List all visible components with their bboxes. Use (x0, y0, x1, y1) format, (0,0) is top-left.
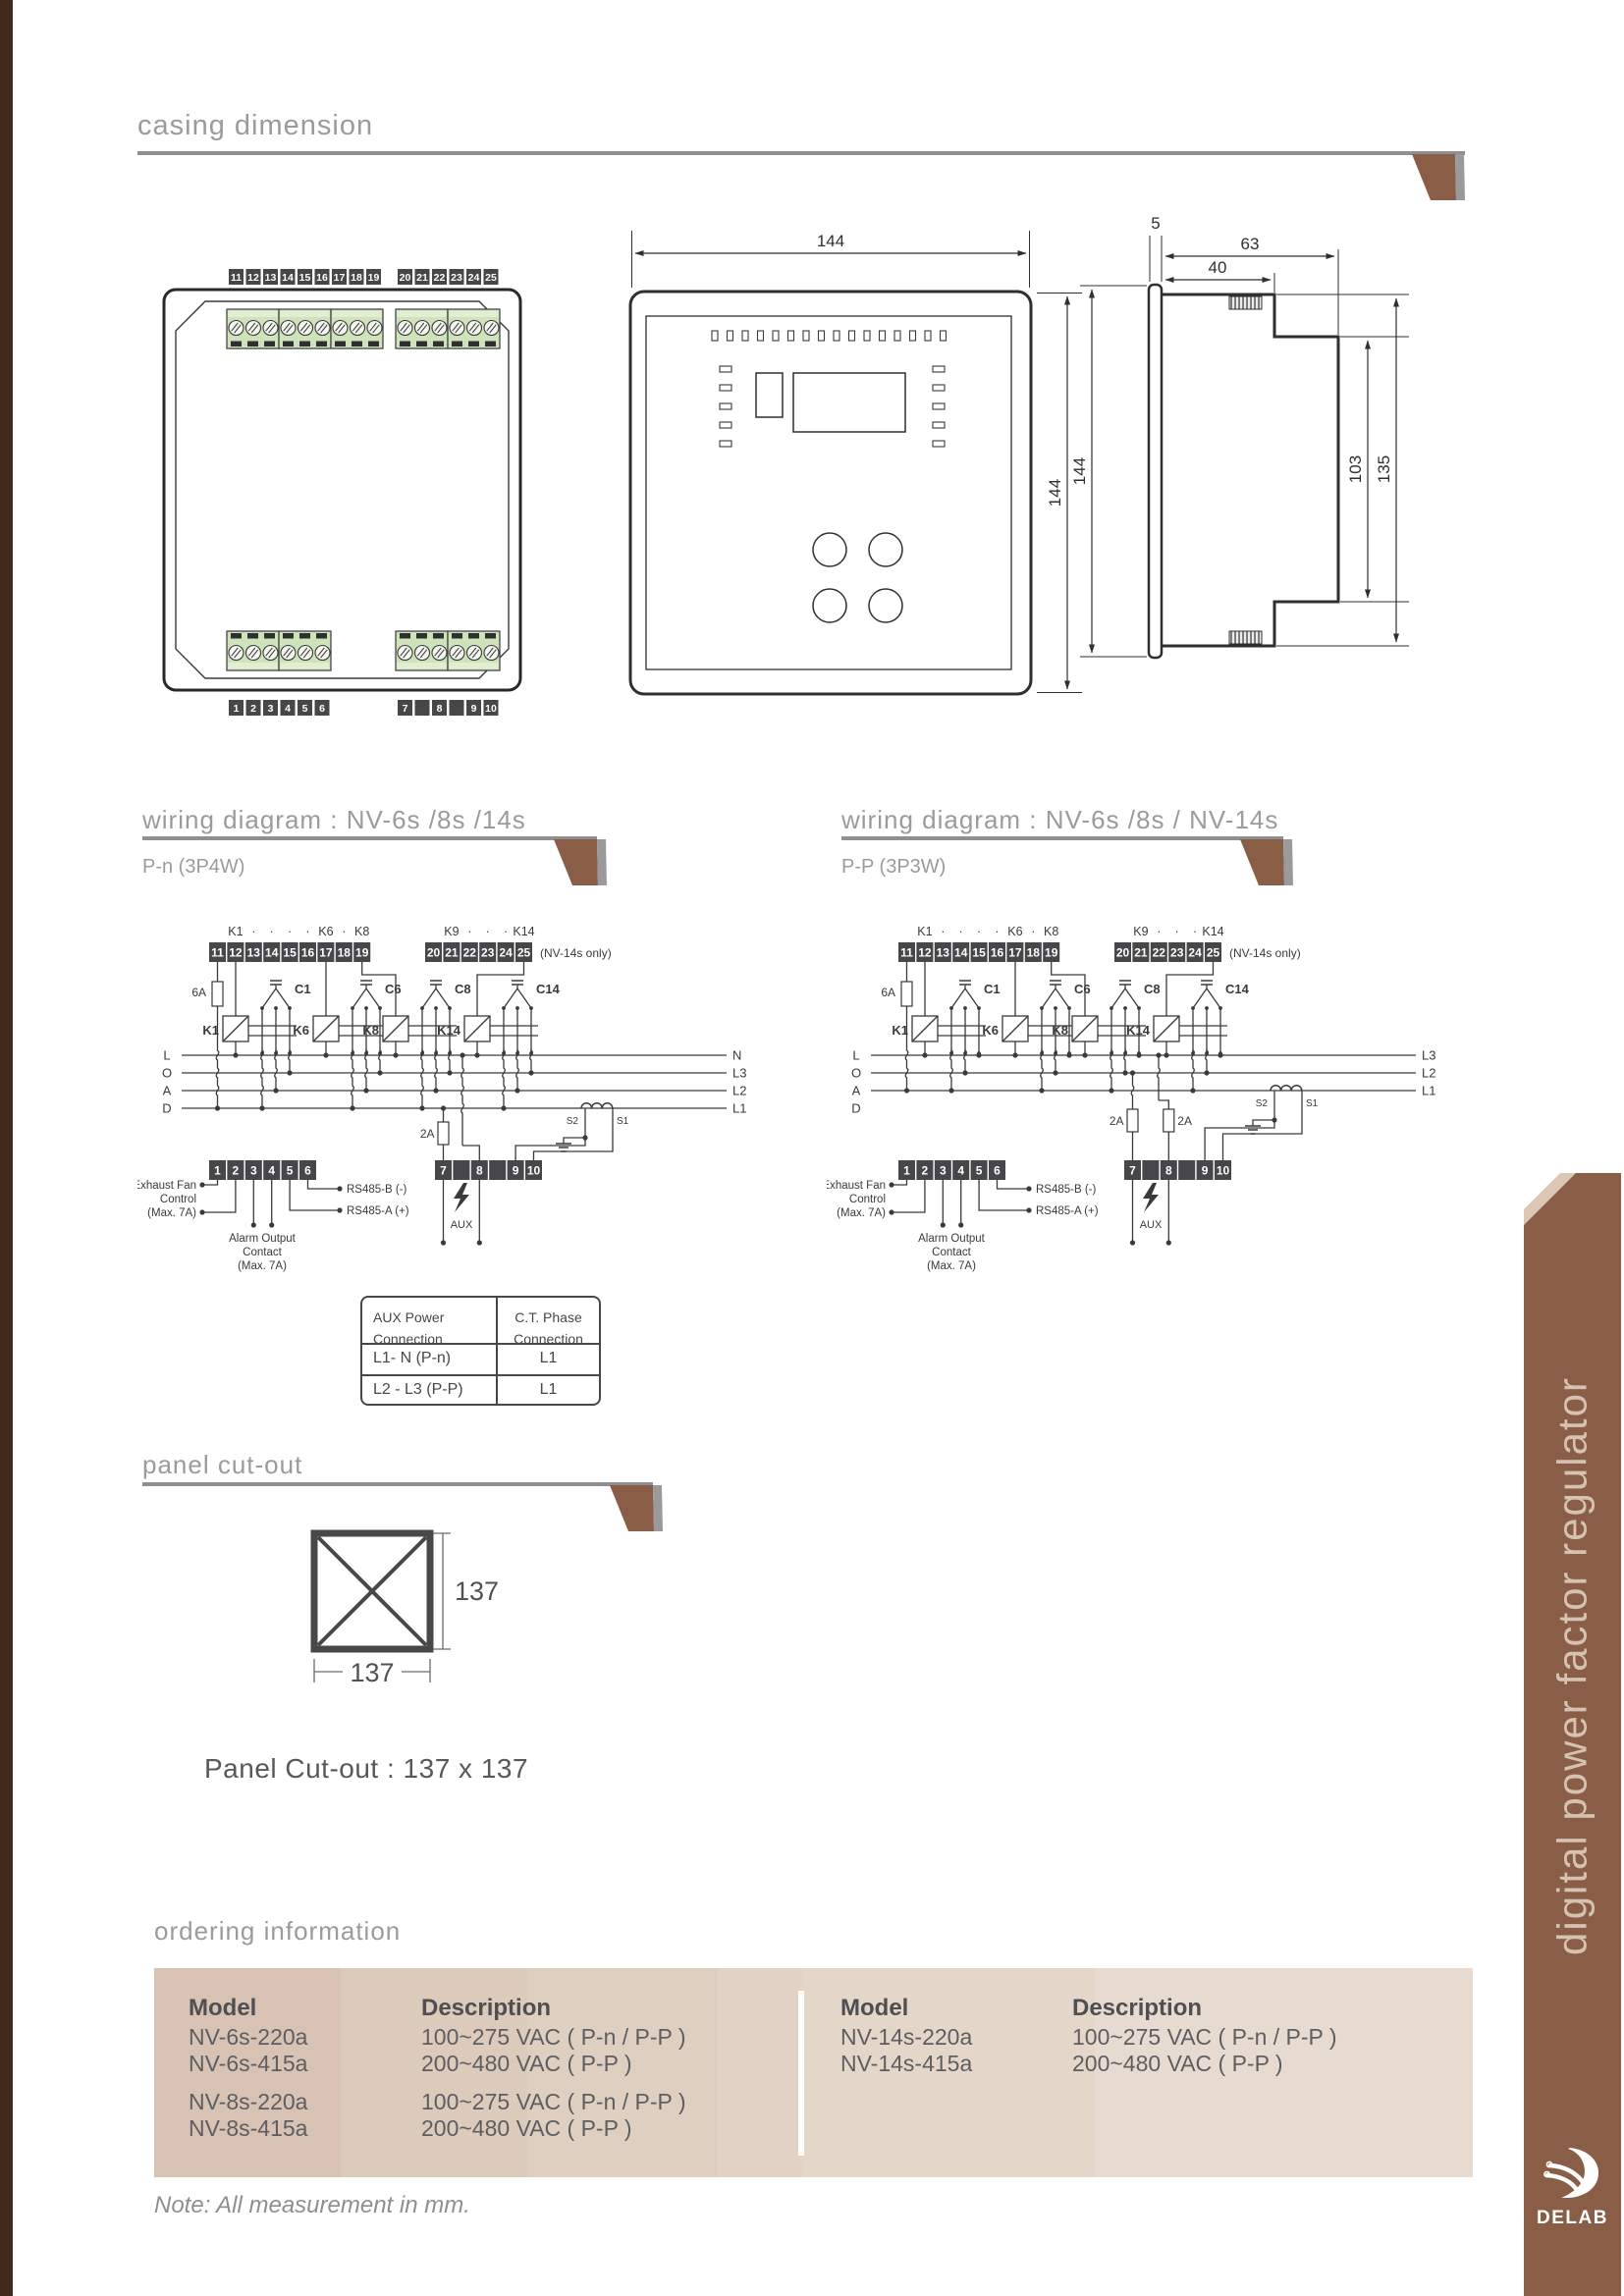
junction-dot (377, 1070, 382, 1075)
section-title-casing: casing dimension (137, 110, 373, 142)
wire-tab (231, 633, 242, 639)
ordering-table-divider (798, 1991, 804, 2156)
fuse (1127, 1109, 1138, 1132)
conn-header-1-line2: Connection (373, 1325, 496, 1347)
wire (436, 988, 450, 1008)
capacitor-label: C14 (1225, 982, 1250, 996)
lightning-icon (454, 1183, 469, 1212)
k-label: K9 (1133, 925, 1148, 938)
terminal-number: 11 (900, 945, 913, 959)
terminal-blocks-top (227, 309, 500, 348)
conn-header-1-line1: AUX Power (373, 1304, 496, 1325)
screw (298, 321, 313, 336)
junction-dot (501, 1105, 506, 1110)
junction-dot (474, 1052, 479, 1057)
front-display (793, 373, 905, 432)
junction-dot (337, 1186, 342, 1191)
terminal-number: 24 (468, 272, 480, 284)
load-letter: A (852, 1084, 861, 1098)
terminal-number: 23 (451, 272, 462, 284)
junction-dot (350, 1105, 354, 1110)
wiring-diagram-pp: L3L2L1LOAD111213141516171819202122232425… (827, 898, 1475, 1276)
panel-cutout-drawing: 137 137 (278, 1520, 671, 1721)
wire-tab (400, 342, 410, 347)
line-label: L1 (1422, 1084, 1435, 1098)
ordering-left-desc-header: Description (421, 1995, 551, 2022)
k-label: K14 (513, 925, 534, 938)
wire-tab (264, 633, 275, 639)
wire (965, 988, 979, 1008)
junction-dot (958, 1222, 963, 1227)
screw (281, 321, 296, 336)
wire (1056, 988, 1069, 1008)
junction-dot (948, 1088, 953, 1093)
rs485-b-label: RS485-B (-) (1036, 1184, 1097, 1196)
fuse (1164, 1109, 1174, 1132)
capacitor-label: C8 (1144, 982, 1161, 996)
terminal-number: 12 (918, 945, 932, 959)
led (933, 366, 945, 372)
front-small-window (756, 373, 783, 417)
terminal-number: 23 (1170, 945, 1184, 959)
junction-dot (514, 1088, 519, 1093)
terminal-number: 9 (1202, 1163, 1209, 1177)
panel-clamp-top (1229, 296, 1262, 309)
load-letter: D (162, 1101, 171, 1116)
wire-tab (452, 633, 462, 639)
capacitor-label: C1 (295, 982, 311, 996)
terminal-number: 7 (1129, 1163, 1136, 1177)
terminal-numbers-1-6: 123456 (229, 700, 330, 716)
rs485-b-label: RS485-B (-) (347, 1184, 407, 1196)
conn-row-2: L2 - L3 (P-P)L1 (362, 1376, 599, 1406)
rule-wiring-left (142, 836, 597, 840)
screw (415, 321, 430, 336)
led-row (712, 331, 947, 341)
junction-dot (1130, 1070, 1135, 1075)
terminal-number: 12 (229, 945, 243, 959)
wiring-left-subtitle: P-n (3P4W) (142, 856, 244, 879)
wire-tab (452, 342, 462, 347)
module-band (333, 311, 382, 318)
rule-wiring-right (841, 836, 1283, 840)
terminal-number: 3 (940, 1163, 947, 1177)
terminal-number: 21 (416, 272, 428, 284)
wire-tab (283, 633, 294, 639)
load-letter: O (851, 1066, 861, 1081)
led (910, 331, 916, 341)
terminal-number: 24 (1188, 945, 1202, 959)
terminal-number: 8 (476, 1163, 483, 1177)
module-band (450, 311, 499, 318)
terminal-number: 18 (351, 272, 362, 284)
junction-dot (1082, 1052, 1087, 1057)
terminal-number: 7 (440, 1163, 447, 1177)
wire-tab (299, 633, 310, 639)
wire-tab (485, 342, 496, 347)
dim-body-depth: 40 (1209, 258, 1227, 277)
panel-dim-width: 137 (350, 1658, 394, 1687)
k-label: K8 (354, 925, 369, 938)
wire (516, 1050, 519, 1091)
terminal-number: 3 (268, 703, 274, 715)
junction-dot (1122, 1070, 1127, 1075)
button-2 (869, 533, 902, 566)
wire (276, 988, 290, 1008)
wiring-right-subtitle: P-P (3P3W) (841, 856, 946, 879)
ordering-left-desc-g1: 100~275 VAC ( P-n / P-P ) 200~480 VAC ( … (421, 2024, 686, 2077)
panel-cutout-caption: Panel Cut-out : 137 x 137 (204, 1753, 528, 1785)
junction-dot (922, 1052, 927, 1057)
screw (263, 321, 278, 336)
terminal-number: 21 (1134, 945, 1148, 959)
module-band (229, 663, 278, 669)
terminal-number: 13 (247, 945, 261, 959)
wire (421, 1050, 424, 1108)
wire (1205, 1120, 1274, 1160)
ordering-left-models-g2: NV-8s-220a NV-8s-415a (189, 2089, 307, 2142)
module-band (281, 311, 330, 318)
terminal-blocks-bottom (227, 631, 500, 670)
terminal-number: 15 (299, 272, 311, 284)
led (941, 331, 947, 341)
casing-dimension-drawing: 111213141516171819 202122232425 123456 7… (137, 162, 1473, 775)
wire-tab (335, 342, 346, 347)
alarm-label: (Max. 7A) (238, 1260, 287, 1272)
wire (515, 1138, 585, 1160)
junction-dot (337, 1207, 342, 1212)
screw (246, 321, 261, 336)
button-1 (813, 533, 846, 566)
terminal-number: 10 (527, 1163, 541, 1177)
terminal-number: 10 (485, 703, 497, 715)
ordering-right-model-header: Model (840, 1995, 908, 2022)
lightning-icon (1143, 1183, 1159, 1212)
load-letter: D (851, 1101, 860, 1116)
nv14-note: (NV-14s only) (540, 946, 612, 960)
flag-decoration-wiring-right (1240, 839, 1299, 888)
screw (229, 321, 244, 336)
dim-bezel: 5 (1151, 214, 1160, 233)
junction-dot (1123, 1006, 1127, 1010)
junction-dot (364, 1006, 368, 1010)
junction-dot (251, 1222, 256, 1227)
wire-tab (316, 342, 327, 347)
sidebar-vertical-title: digital power factor regulator (1524, 1217, 1621, 2114)
ct-s1: S1 (1306, 1098, 1319, 1109)
led (720, 385, 731, 391)
wire (461, 1055, 464, 1146)
terminal-number: 18 (1027, 945, 1041, 959)
terminal-box (453, 1160, 469, 1180)
wire (1193, 988, 1207, 1008)
junction-dot (963, 1006, 967, 1010)
brand-logo-block: DELAB (1524, 2146, 1621, 2229)
fuse-label: 6A (191, 986, 206, 999)
section-title-ordering: ordering information (154, 1916, 401, 1947)
alarm-label: Contact (243, 1247, 282, 1258)
terminal-number: 15 (972, 945, 986, 959)
wire (1111, 988, 1125, 1008)
terminal-number: 21 (445, 945, 459, 959)
fuse-label: 2A (1110, 1114, 1124, 1128)
wire (951, 988, 965, 1008)
led (933, 385, 945, 391)
junction-dot (433, 1088, 438, 1093)
terminal-number: 20 (400, 272, 411, 284)
terminal-number: 2 (250, 703, 256, 715)
fuse-label: 2A (420, 1127, 435, 1141)
ordering-left-models-g1: NV-6s-220a NV-6s-415a (189, 2024, 307, 2077)
k-label: K14 (1202, 925, 1223, 938)
junction-dot (273, 1088, 278, 1093)
terminal-box (450, 700, 464, 716)
led (728, 331, 733, 341)
module-band (281, 663, 330, 669)
aux-ct-connection-table: AUX PowerConnection C.T. PhaseConnection… (360, 1296, 601, 1406)
exhaust-label: (Max. 7A) (147, 1207, 196, 1219)
led (742, 331, 748, 341)
junction-dot (528, 1070, 533, 1075)
junction-dot (1039, 1088, 1044, 1093)
junction-dot (1164, 1052, 1168, 1057)
led (933, 422, 945, 428)
junction-dot (1205, 1006, 1209, 1010)
load-letter: L (163, 1048, 170, 1063)
terminal-number: 14 (265, 945, 279, 959)
screw (415, 646, 430, 661)
terminal-number: 7 (403, 703, 408, 715)
terminal-number: 19 (368, 272, 380, 284)
k-label: K1 (917, 925, 932, 938)
junction-dot (233, 1052, 238, 1057)
terminal-numbers-20-25: 202122232425 (398, 269, 499, 285)
terminal-number: 24 (499, 945, 513, 959)
load-letter: A (163, 1084, 172, 1098)
wire-tab (416, 633, 427, 639)
terminal-box (489, 1160, 506, 1180)
terminal-number: 8 (1165, 1163, 1172, 1177)
ordering-right-desc-header: Description (1072, 1995, 1202, 2022)
measurement-note: Note: All measurement in mm. (154, 2192, 470, 2219)
terminal-number: 2 (233, 1163, 240, 1177)
contactor-label: K1 (892, 1023, 908, 1038)
wire-tab (468, 342, 479, 347)
terminal-number: 23 (481, 945, 495, 959)
junction-dot (1156, 1052, 1161, 1057)
terminal-number: 25 (1207, 945, 1220, 959)
led (720, 441, 731, 447)
wire-tab (468, 633, 479, 639)
junction-dot (904, 1088, 909, 1093)
wire (979, 1180, 1029, 1210)
terminal-number: 6 (994, 1163, 1001, 1177)
screw (281, 646, 296, 661)
k-label: K6 (1007, 925, 1022, 938)
screw (229, 646, 244, 661)
junction-dot (259, 1105, 264, 1110)
button-3 (813, 589, 846, 622)
contactor-label: K1 (202, 1023, 219, 1038)
junction-dot (215, 1105, 220, 1110)
capacitor-label: C1 (984, 982, 1001, 996)
screw (484, 321, 499, 336)
junction-dot (199, 1209, 204, 1214)
led (720, 422, 731, 428)
wire (290, 1180, 340, 1210)
led (849, 331, 855, 341)
contactor-label: K14 (437, 1023, 461, 1038)
panel-dim-height: 137 (455, 1576, 499, 1606)
junction-dot (460, 1052, 464, 1057)
terminal-number: 10 (1217, 1163, 1230, 1177)
alarm-label: Contact (932, 1247, 971, 1258)
junction-dot (1053, 1070, 1057, 1075)
wire-tab (368, 342, 379, 347)
terminal-number: 11 (231, 272, 242, 284)
screw (315, 646, 330, 661)
delab-logo-icon (1543, 2146, 1603, 2201)
terminal-number: 1 (214, 1163, 221, 1177)
k-label: K9 (444, 925, 459, 938)
screw (450, 646, 464, 661)
capacitor-label: C6 (1074, 982, 1091, 996)
terminal-number: 22 (434, 272, 446, 284)
wire (365, 1050, 368, 1091)
wire-tab (231, 342, 242, 347)
terminal-box (415, 700, 430, 716)
terminal-number: 17 (1008, 945, 1022, 959)
contactor-label: K6 (293, 1023, 309, 1038)
terminal-number: 22 (1153, 945, 1166, 959)
led (758, 331, 764, 341)
terminal-number: 6 (304, 1163, 311, 1177)
terminal-number: 14 (282, 272, 294, 284)
led (880, 331, 886, 341)
junction-dot (1136, 1052, 1141, 1057)
rule-panel (142, 1482, 653, 1486)
panel-clamp-bottom (1229, 631, 1262, 644)
junction-dot (1066, 1052, 1071, 1057)
dim-front-height: 144 (1046, 479, 1064, 507)
wire (504, 988, 517, 1008)
conn-header-2-line1: C.T. Phase (498, 1304, 599, 1325)
k-label: · (270, 925, 274, 938)
terminal-number: 3 (250, 1163, 257, 1177)
wire (352, 988, 366, 1008)
wire-tab (485, 633, 496, 639)
brand-name: DELAB (1524, 2208, 1621, 2229)
junction-dot (976, 1052, 981, 1057)
k-label: K6 (318, 925, 333, 938)
junction-dot (323, 1052, 328, 1057)
dim-side-height: 144 (1070, 457, 1089, 485)
terminal-number: 9 (513, 1163, 519, 1177)
terminal-number: 9 (471, 703, 477, 715)
k-label: K1 (228, 925, 243, 938)
led (720, 403, 731, 409)
k-label: · (504, 925, 508, 938)
k-label: · (1175, 925, 1179, 938)
wire (564, 1138, 585, 1144)
ordering-left-desc-g2: 100~275 VAC ( P-n / P-P ) 200~480 VAC ( … (421, 2089, 686, 2142)
terminal-number: 19 (1045, 945, 1058, 959)
wire (462, 1146, 479, 1160)
screw (315, 321, 330, 336)
terminal-number: 19 (355, 945, 369, 959)
fuse (438, 1122, 449, 1145)
terminal-number: 22 (463, 945, 477, 959)
terminal-number: 4 (957, 1163, 964, 1177)
led-col-left (720, 366, 731, 447)
nv14-note: (NV-14s only) (1229, 946, 1301, 960)
wire (1253, 1120, 1274, 1126)
wiring-diagram-pn: NL3L2L1LOAD11121314151617181920212223242… (137, 898, 785, 1276)
screw (398, 321, 412, 336)
terminal-number: 25 (485, 272, 497, 284)
screw (367, 321, 382, 336)
rs485-a-label: RS485-A (+) (1036, 1205, 1099, 1217)
alarm-label: Alarm Output (918, 1233, 986, 1245)
fuse-label: 2A (1177, 1114, 1192, 1128)
k-label: · (305, 925, 309, 938)
section-title-wiring-left: wiring diagram : NV-6s /8s /14s (142, 805, 526, 835)
terminal-number: 16 (301, 945, 315, 959)
junction-dot (199, 1182, 204, 1187)
terminal-numbers-7-10: 78910 (398, 700, 499, 716)
screw (467, 646, 482, 661)
terminal-number: 2 (922, 1163, 929, 1177)
terminal-number: 15 (283, 945, 297, 959)
terminal-number: 5 (287, 1163, 294, 1177)
screw (333, 321, 348, 336)
k-label: · (941, 925, 945, 938)
fuse (212, 982, 223, 1006)
alarm-label: Alarm Output (229, 1233, 297, 1245)
wire (1110, 1050, 1113, 1091)
alarm-label: (Max. 7A) (927, 1260, 976, 1272)
led (773, 331, 779, 341)
wire (262, 988, 276, 1008)
terminal-numbers-11-19: 111213141516171819 (229, 269, 381, 285)
terminal-number: 20 (1116, 945, 1130, 959)
terminal-number: 17 (334, 272, 346, 284)
aux-label: AUX (451, 1219, 473, 1231)
k-label: · (342, 925, 346, 938)
terminal-number: 16 (316, 272, 328, 284)
junction-dot (515, 1006, 519, 1010)
terminal-number: 13 (265, 272, 277, 284)
terminal-box (1178, 1160, 1195, 1180)
exhaust-label: Control (160, 1194, 196, 1205)
wire (352, 1050, 354, 1108)
terminal-box (1142, 1160, 1159, 1180)
capacitor-label: C14 (536, 982, 561, 996)
led-col-right (933, 366, 945, 447)
junction-dot (447, 1070, 452, 1075)
junction-dot (287, 1070, 292, 1075)
junction-dot (363, 1088, 368, 1093)
wire-tab (247, 342, 258, 347)
wire (517, 988, 531, 1008)
junction-dot (1204, 1070, 1209, 1075)
load-letter: L (852, 1048, 859, 1063)
wire (1041, 1050, 1044, 1091)
junction-dot (1130, 1240, 1135, 1245)
screw (351, 321, 365, 336)
k-label: · (959, 925, 963, 938)
junction-dot (889, 1209, 893, 1214)
